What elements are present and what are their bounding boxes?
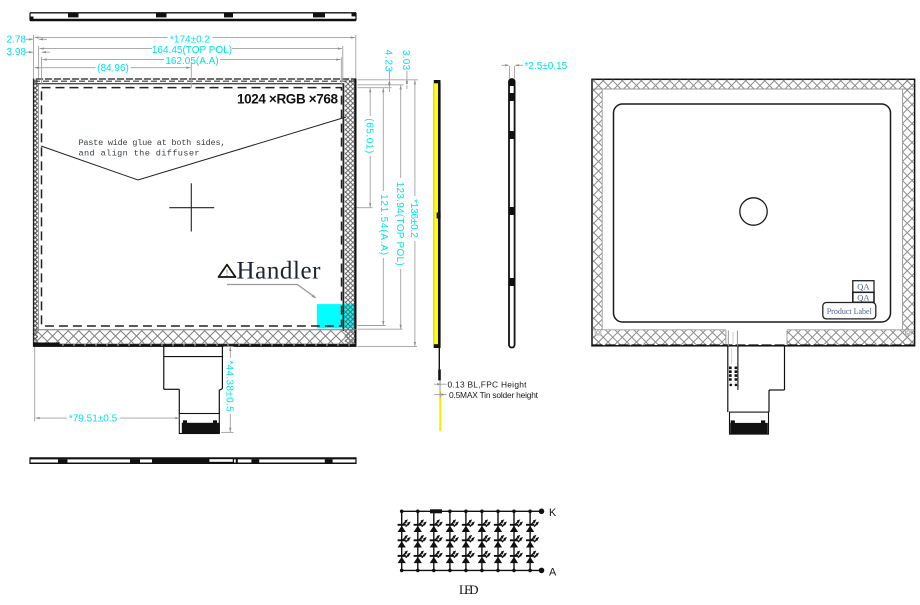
svg-text:1024 ×RGB ×768: 1024 ×RGB ×768 [237,92,338,107]
svg-text:121.54(A.A): 121.54(A.A) [378,194,389,255]
svg-text:0.13 BL,FPC Height: 0.13 BL,FPC Height [448,379,528,389]
svg-text:!: ! [226,268,229,278]
svg-text:(84.96): (84.96) [97,63,129,74]
svg-text:Paste wide glue at both sides,: Paste wide glue at both sides, [79,138,226,148]
svg-text:0.5MAX Tin solder height: 0.5MAX Tin solder height [449,390,539,400]
svg-text:LED: LED [459,583,479,597]
svg-text:*79.51±0.5: *79.51±0.5 [69,414,118,425]
svg-text:Product Label: Product Label [827,307,873,316]
svg-text:K: K [549,507,557,519]
svg-text:and align the diffuser: and align the diffuser [79,148,200,158]
svg-text:2.78: 2.78 [7,35,27,46]
svg-text:A: A [549,567,557,579]
svg-text:4.23: 4.23 [383,50,394,72]
svg-text:*44.38±0.5: *44.38±0.5 [224,360,235,412]
svg-text:123.94(TOP POL): 123.94(TOP POL) [394,182,405,266]
svg-text:164.45(TOP POL): 164.45(TOP POL) [152,45,232,56]
svg-text:162.05(A.A): 162.05(A.A) [165,56,218,67]
svg-text:QA: QA [857,293,870,303]
svg-text:Handler: Handler [237,258,322,285]
svg-text:(65.01): (65.01) [364,118,375,153]
svg-text:3.98: 3.98 [7,47,27,58]
svg-text:*174±0.2: *174±0.2 [170,34,210,45]
svg-text:3.03: 3.03 [400,50,411,71]
svg-text:QA: QA [857,282,870,292]
svg-text:*2.5±0.15: *2.5±0.15 [525,61,568,72]
svg-text:*136±0.2: *136±0.2 [408,199,419,238]
